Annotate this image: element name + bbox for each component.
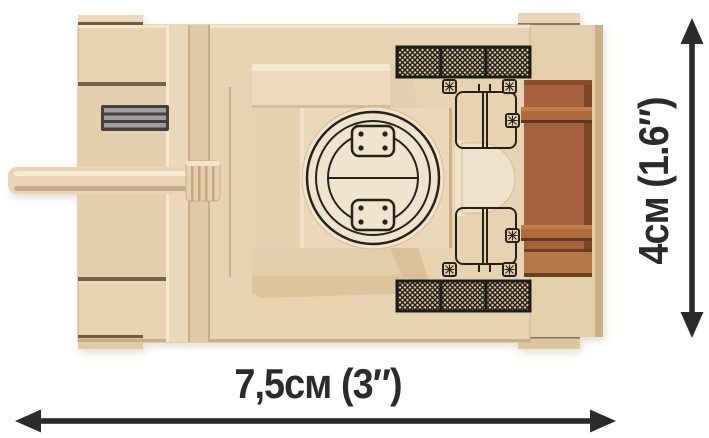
height-arrow — [681, 18, 704, 338]
hinge-print — [506, 229, 519, 242]
turret-hatch — [302, 107, 444, 249]
height-dimension-label: 4см (1.6″) — [633, 97, 675, 264]
barrel-collar — [186, 161, 220, 201]
tank-top-view — [8, 13, 603, 349]
hatch-hinge-print-top — [352, 126, 394, 156]
width-dimension-label: 7,5см (3″) — [234, 363, 401, 405]
width-arrow — [15, 410, 616, 433]
hinge-print — [503, 263, 516, 276]
hatch-hinge-print-bottom — [352, 200, 394, 230]
engine-grille-bottom — [397, 281, 530, 311]
hinge-print — [503, 80, 516, 93]
driver-vent — [101, 105, 169, 131]
fuel-crate — [521, 80, 592, 277]
engine-grille-top — [397, 47, 530, 77]
hinge-print — [443, 80, 456, 93]
crate-strap-top — [521, 107, 592, 123]
crate-strap-bottom — [521, 225, 592, 241]
product-dimensions-figure: 7,5см (3″) 4см (1.6″) — [0, 0, 709, 438]
hinge-print — [443, 263, 456, 276]
hinge-print — [506, 114, 519, 127]
